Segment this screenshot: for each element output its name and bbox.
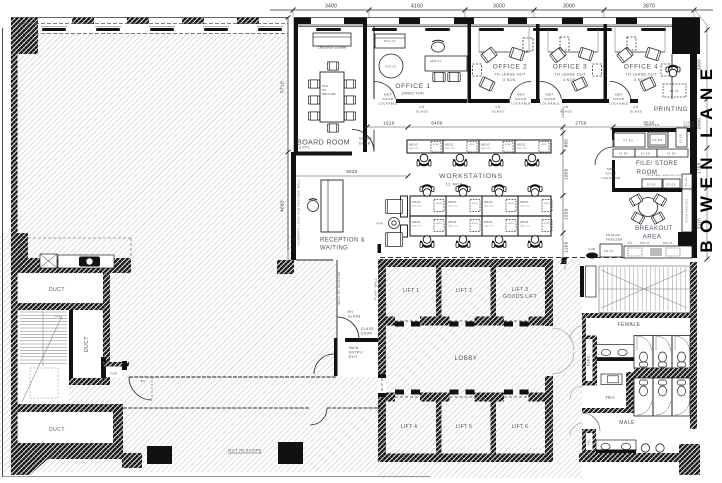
svg-text:FREEZER: FREEZER [606,238,623,242]
svg-text:TEL.: TEL. [587,438,591,446]
svg-text:1600 x 750: 1600 x 750 [448,226,457,228]
svg-text:LIFT 2: LIFT 2 [456,288,473,294]
svg-text:TEA: TEA [605,395,616,400]
svg-text:S1 EK.: S1 EK. [619,152,629,156]
svg-text:1600 x 750: 1600 x 750 [412,226,421,228]
svg-text:ET.02: ET.02 [505,144,511,146]
svg-text:EDE.01: EDE.01 [430,59,441,63]
svg-text:S2 EX.: S2 EX. [667,152,677,156]
svg-text:1550: 1550 [564,208,569,220]
svg-text:3 NOS.: 3 NOS. [503,78,517,82]
svg-text:ETA.02: ETA.02 [386,65,397,69]
svg-text:WS.01: WS.01 [448,200,457,204]
svg-text:3000: 3000 [493,4,505,10]
svg-text:ET.02: ET.02 [541,144,547,146]
svg-text:ET.01: ET.01 [544,223,550,225]
svg-text:WS.01: WS.01 [484,200,493,204]
svg-text:COMPANY LOGO AND FEATURE WALL: COMPANY LOGO AND FEATURE WALL [297,179,301,246]
svg-text:ELEC.: ELEC. [587,354,591,366]
svg-text:ET.01: ET.01 [436,223,442,225]
svg-text:P1 EX.: P1 EX. [623,139,634,143]
svg-text:DOOR: DOOR [606,172,617,176]
svg-text:WALL BY FEATURE: WALL BY FEATURE [337,271,341,304]
svg-text:1600 x 750: 1600 x 750 [481,148,490,150]
svg-text:8 PPL: 8 PPL [299,146,310,150]
svg-text:DW.01: DW.01 [640,241,650,245]
svg-text:MW.01: MW.01 [663,241,673,245]
svg-text:OFFICE 2: OFFICE 2 [493,64,527,71]
svg-text:DOOR: DOOR [359,142,371,146]
svg-text:DOOR: DOOR [361,332,372,336]
svg-text:WAITING: WAITING [320,246,348,252]
svg-text:800: 800 [564,139,569,148]
svg-text:FH: FH [496,105,501,109]
svg-text:MDF: MDF [517,93,525,97]
svg-text:FHR: FHR [376,222,383,226]
svg-text:WS.02: WS.02 [517,143,526,147]
svg-text:WS.02: WS.02 [409,143,418,147]
svg-text:DUCT: DUCT [84,336,90,352]
svg-text:OFFICE 3: OFFICE 3 [553,64,587,71]
svg-text:ET.02: ET.02 [433,144,439,146]
svg-text:PLANT WALL: PLANT WALL [374,278,378,301]
svg-text:TO LEASE OUT: TO LEASE OUT [554,73,586,77]
svg-text:NOT IN SCOPE: NOT IN SCOPE [228,448,261,453]
svg-text:FRIDGE/: FRIDGE/ [606,233,621,237]
svg-text:OFFICE 4: OFFICE 4 [624,64,658,71]
svg-text:ET.01: ET.01 [508,223,514,225]
svg-text:1800: 1800 [564,168,569,180]
svg-text:1600 x 750: 1600 x 750 [517,148,526,150]
svg-text:LOBBY: LOBBY [454,356,477,362]
svg-text:GLASS: GLASS [359,137,372,141]
svg-text:WS.01: WS.01 [520,220,529,224]
svg-text:TO LEASE OUT: TO LEASE OUT [625,73,657,77]
svg-text:EXIT: EXIT [349,355,358,359]
svg-text:DOOR: DOOR [516,97,527,101]
svg-text:WS.02: WS.02 [445,143,454,147]
svg-text:7PL: 7PL [322,89,327,92]
svg-text:GLASS: GLASS [348,315,361,319]
svg-text:1600 x 750: 1600 x 750 [520,206,529,208]
svg-text:GLASS: GLASS [560,110,572,114]
svg-text:RECEPTION &: RECEPTION & [320,238,365,244]
svg-text:2750: 2750 [575,121,587,126]
svg-text:FH: FH [634,105,639,109]
svg-text:WS.02: WS.02 [481,143,490,147]
svg-text:3600 X 1500: 3600 X 1500 [322,93,336,96]
svg-text:S4 EX.: S4 EX. [685,177,688,187]
svg-text:TA.01: TA.01 [322,85,329,88]
svg-text:FHR: FHR [111,372,118,376]
svg-text:AREA: AREA [643,234,662,241]
svg-text:5710: 5710 [280,81,285,93]
svg-text:1600 x 750: 1600 x 750 [448,206,457,208]
svg-text:ET.01: ET.01 [472,203,478,205]
svg-text:FR.01: FR.01 [604,249,614,253]
svg-text:MALE: MALE [619,420,635,426]
svg-text:WS.01: WS.01 [412,220,421,224]
svg-text:LOCKABLE: LOCKABLE [540,102,560,106]
svg-text:PRINTING: PRINTING [654,106,688,113]
svg-text:1600 x 750: 1600 x 750 [484,226,493,228]
svg-text:6400: 6400 [431,121,443,126]
svg-text:J01: J01 [627,241,633,245]
svg-text:WS.01: WS.01 [412,200,421,204]
svg-text:4685: 4685 [280,200,285,212]
svg-text:ET.01: ET.01 [436,203,442,205]
svg-text:CREDENZA 1500MM: CREDENZA 1500MM [318,46,347,50]
svg-text:FH: FH [564,105,569,109]
svg-text:LIFT 4: LIFT 4 [401,424,418,430]
svg-text:FHR: FHR [589,247,596,251]
svg-text:4160: 4160 [411,4,423,10]
svg-text:DOOR: DOOR [545,97,556,101]
svg-text:GOODS LIFT: GOODS LIFT [503,294,537,300]
svg-text:WS.01: WS.01 [448,220,457,224]
svg-text:S3 EX.: S3 EX. [647,183,657,187]
svg-text:MDF: MDF [546,93,554,97]
svg-text:LIFT 3: LIFT 3 [512,287,529,293]
svg-text:67.01: 67.01 [670,89,679,93]
svg-text:LIFT 5: LIFT 5 [456,424,473,430]
svg-text:3870: 3870 [643,4,655,10]
svg-text:BOARD: BOARD [684,125,695,128]
svg-text:FILE/ STORE: FILE/ STORE [636,161,678,167]
svg-text:ENTRY/: ENTRY/ [349,351,363,355]
svg-text:TO LEASE OUT: TO LEASE OUT [494,73,526,77]
svg-text:MDF: MDF [607,167,615,171]
svg-text:WS.01: WS.01 [484,220,493,224]
svg-text:LOCKABLE: LOCKABLE [511,102,531,106]
svg-text:LIFT 6: LIFT 6 [512,424,529,430]
svg-text:FH: FH [348,310,353,314]
svg-text:3000: 3000 [563,4,575,10]
svg-text:P3 EX.: P3 EX. [679,133,683,143]
svg-text:ET.01: ET.01 [544,203,550,205]
svg-text:GLASS: GLASS [361,327,374,331]
svg-text:OPEN SHELVES: OPEN SHELVES [686,199,689,223]
svg-text:1620: 1620 [383,121,395,126]
svg-text:1600 x 750: 1600 x 750 [409,148,418,150]
svg-text:DOOR: DOOR [614,97,625,101]
svg-text:DIRECTOR: DIRECTOR [402,92,424,96]
svg-text:ET.01: ET.01 [508,203,514,205]
svg-text:1600 x 750: 1600 x 750 [445,148,454,150]
svg-text:3400: 3400 [325,4,337,10]
svg-text:1200: 1200 [564,241,569,253]
svg-text:GLASS: GLASS [416,110,428,114]
svg-text:LIFT 1: LIFT 1 [403,288,420,294]
svg-text:5020: 5020 [346,169,358,174]
svg-text:LOCKABLE: LOCKABLE [378,102,398,106]
svg-text:MDF: MDF [615,93,623,97]
svg-text:S3 EX.: S3 EX. [666,183,676,187]
svg-text:WORKSTATIONS: WORKSTATIONS [439,173,503,180]
svg-text:DUCT: DUCT [49,427,65,433]
svg-text:PRINTER: PRINTER [645,123,659,127]
svg-text:EX: EX [141,379,146,383]
svg-text:LOCKABLE: LOCKABLE [609,102,629,106]
svg-text:DUCT: DUCT [49,287,65,293]
svg-text:GLASS: GLASS [492,110,504,114]
svg-text:P2 EX.: P2 EX. [652,138,663,142]
svg-text:GLASS: GLASS [630,110,642,114]
svg-text:ET.02: ET.02 [469,144,475,146]
svg-text:BCH.02: BCH.02 [384,39,396,43]
svg-text:BOWEN LANE: BOWEN LANE [697,61,716,252]
svg-text:DOOR: DOOR [383,97,394,101]
svg-text:1600 x 750: 1600 x 750 [484,206,493,208]
svg-text:1600 x 750: 1600 x 750 [520,226,529,228]
svg-text:ET.01: ET.01 [472,223,478,225]
svg-text:MDF: MDF [384,93,392,97]
svg-text:1600 x 750: 1600 x 750 [412,206,421,208]
svg-text:LOCKABLE: LOCKABLE [601,176,621,180]
svg-text:FH: FH [420,105,425,109]
svg-text:BREAKOUT: BREAKOUT [635,225,673,232]
svg-text:S1 ER.: S1 ER. [641,152,652,156]
svg-text:MAIN: MAIN [349,346,359,350]
svg-text:WS.01: WS.01 [520,200,529,204]
svg-text:OFFICE 1: OFFICE 1 [395,83,430,90]
svg-text:FEMALE: FEMALE [617,322,640,328]
